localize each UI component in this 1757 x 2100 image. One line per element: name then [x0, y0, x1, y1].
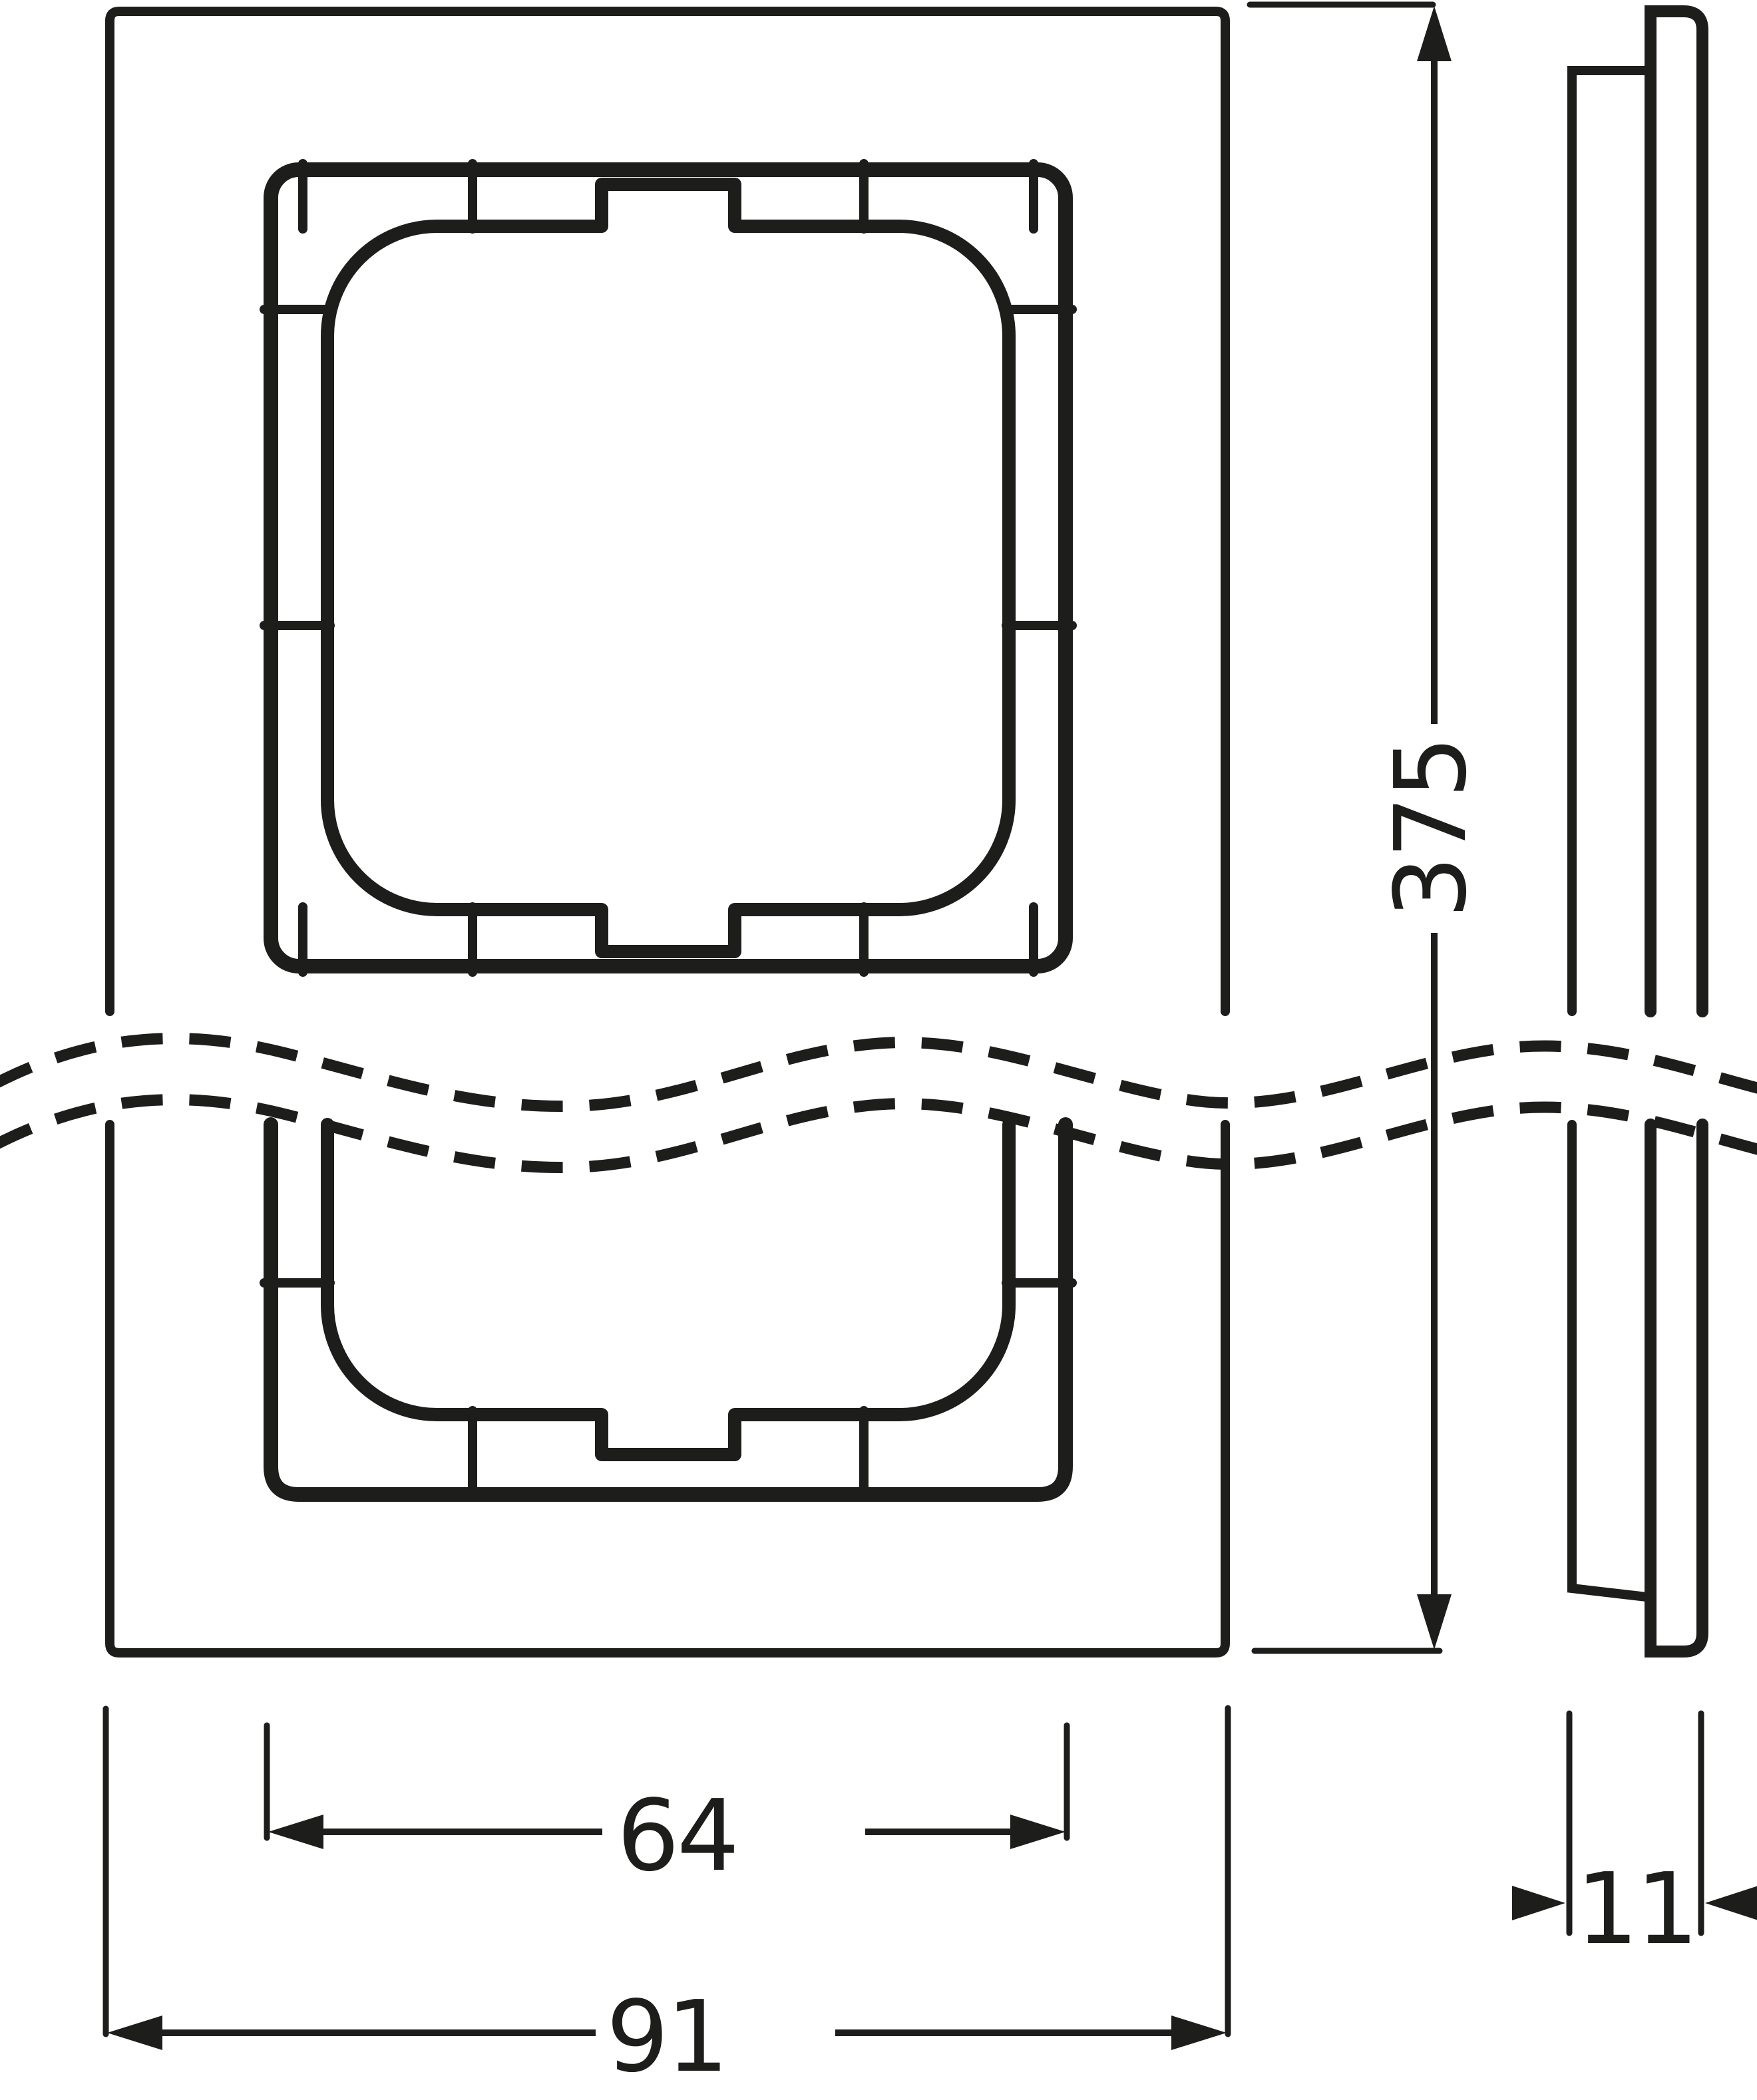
break-wave-upper [0, 1039, 1757, 1107]
dim-64-label: 64 [617, 1779, 737, 1893]
surround-seam-ticks [264, 164, 1072, 972]
front-view [110, 11, 1225, 1653]
dim-64-arrow-right [1010, 1815, 1066, 1849]
dimension-91: 91 [106, 1708, 1228, 2094]
module-surround [271, 170, 1066, 966]
dim-375-label: 375 [1374, 739, 1488, 919]
dim-91-label: 91 [606, 1980, 726, 2094]
bottom-module-opening [327, 1125, 1009, 1455]
dim-375-arrow-up [1417, 6, 1452, 61]
drawing-sheet: 375 64 91 11 [0, 0, 1757, 2100]
bottom-module-surround [271, 1125, 1066, 1494]
dimension-11: 11 [1512, 1713, 1757, 1966]
bottom-surround-seam-ticks [264, 1283, 1072, 1497]
side-back-strip-upper [1651, 11, 1702, 1011]
dim-11-arrow-left [1512, 1886, 1565, 1920]
dim-375-arrow-down [1417, 1594, 1452, 1650]
dim-91-arrow-right [1171, 2015, 1227, 2050]
side-view [1572, 11, 1702, 1652]
dimension-64: 64 [267, 1725, 1067, 1893]
dim-11-label: 11 [1576, 1852, 1696, 1966]
module-opening [327, 184, 1009, 952]
dim-91-arrow-left [107, 2015, 162, 2050]
side-back-strip-lower [1651, 1125, 1702, 1652]
dim-11-arrow-right [1705, 1886, 1757, 1920]
side-front-lip-upper [1572, 71, 1647, 1011]
dimension-375: 375 [1250, 5, 1488, 1651]
side-front-lip-lower [1572, 1125, 1647, 1597]
dim-64-arrow-left [268, 1815, 323, 1849]
